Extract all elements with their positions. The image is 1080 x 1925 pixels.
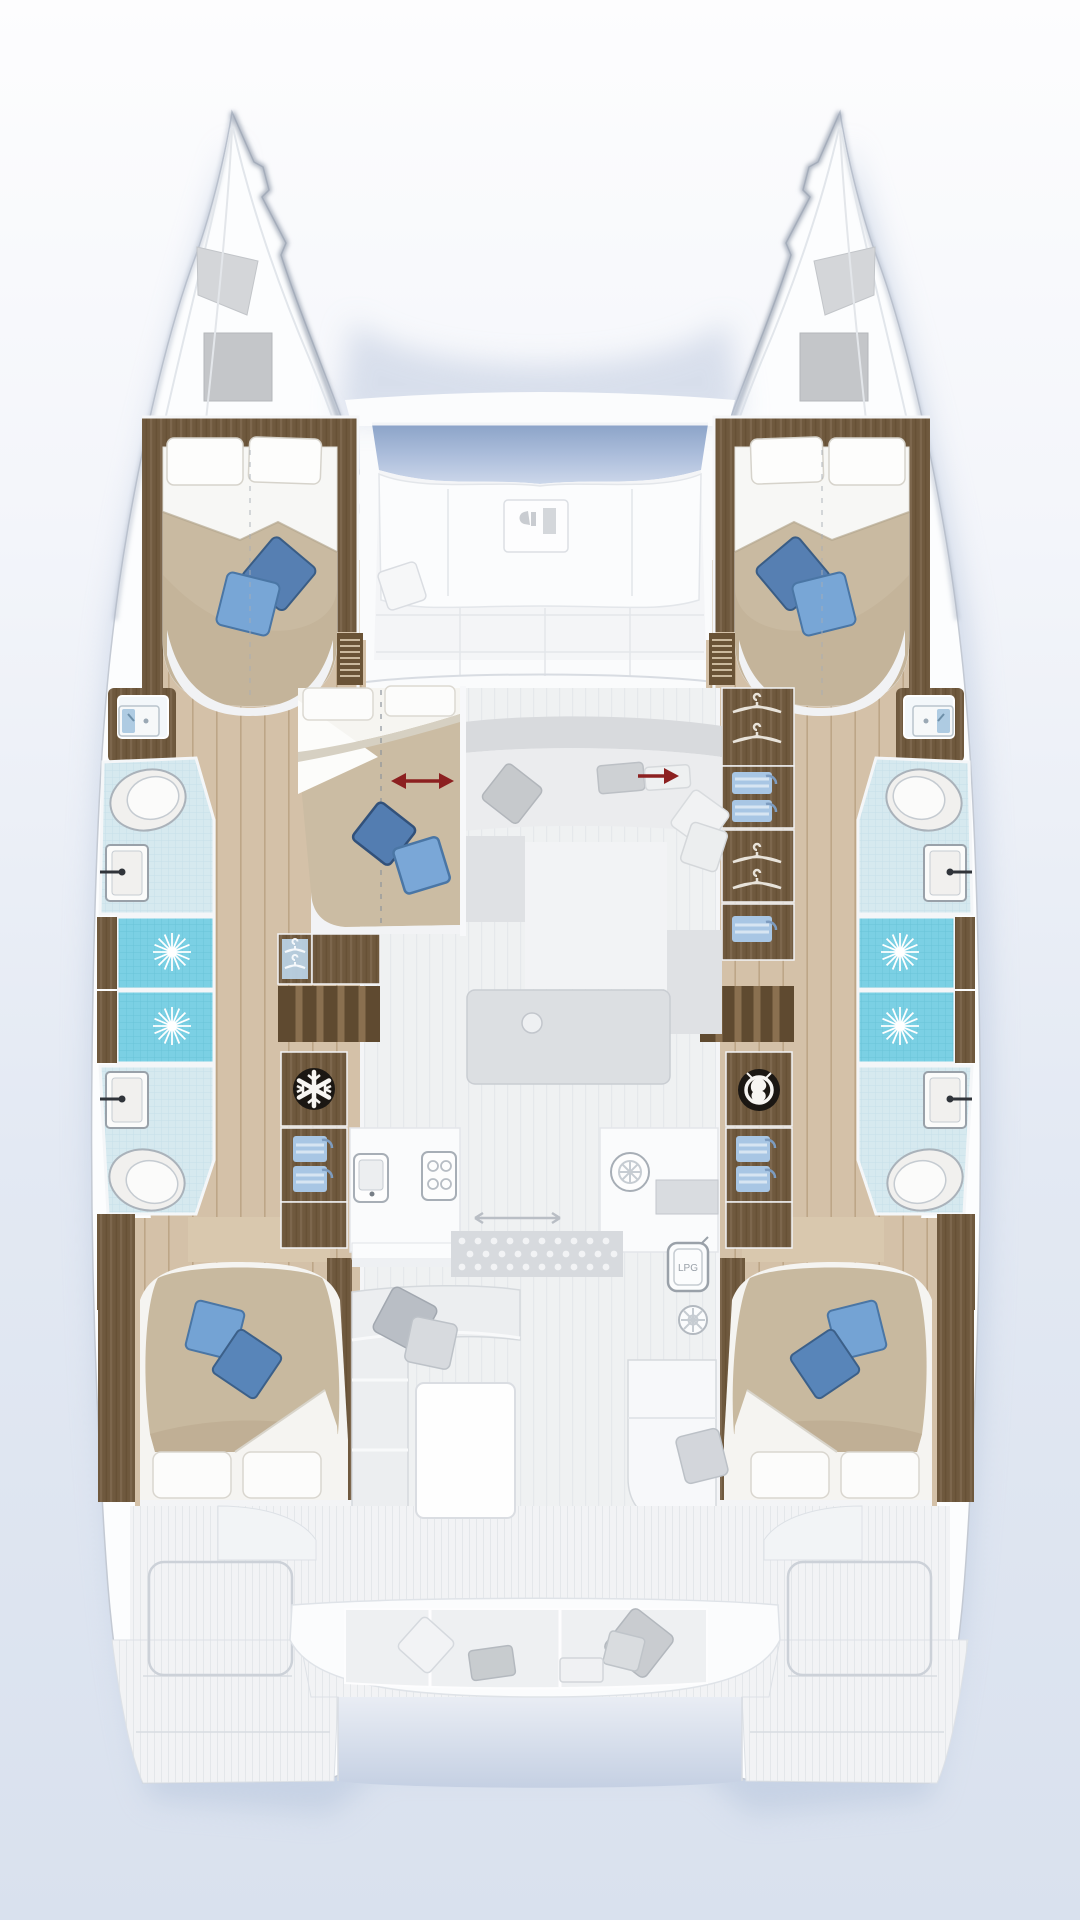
svg-text:LPG: LPG <box>678 1263 698 1274</box>
